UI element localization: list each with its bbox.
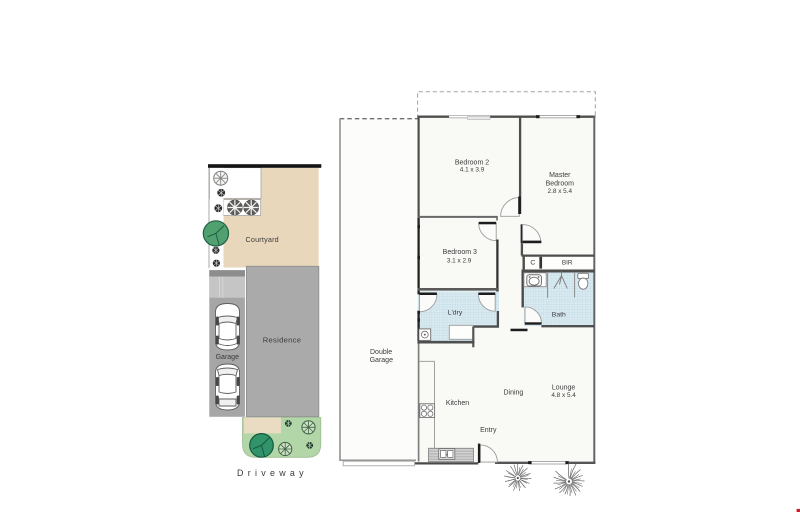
svg-text:Dining: Dining <box>503 389 523 396</box>
svg-text:Double: Double <box>370 349 392 356</box>
svg-text:C: C <box>530 260 535 267</box>
svg-text:3.1 x 2.9: 3.1 x 2.9 <box>447 257 472 264</box>
svg-text:Garage: Garage <box>216 354 239 361</box>
svg-text:Kitchen: Kitchen <box>446 400 469 407</box>
svg-text:BIR: BIR <box>562 260 573 267</box>
svg-text:Bedroom: Bedroom <box>546 181 575 188</box>
svg-text:4.1 x 3.9: 4.1 x 3.9 <box>460 166 485 173</box>
svg-text:Courtyard: Courtyard <box>246 235 279 244</box>
svg-text:Bedroom 3: Bedroom 3 <box>443 249 477 256</box>
svg-text:Bath: Bath <box>552 311 566 318</box>
svg-text:Master: Master <box>549 172 571 179</box>
svg-text:Entry: Entry <box>480 427 497 434</box>
svg-text:L'dry: L'dry <box>448 309 463 316</box>
svg-text:Garage: Garage <box>370 357 393 364</box>
svg-text:Residence: Residence <box>263 335 302 344</box>
svg-text:Driveway: Driveway <box>237 468 308 478</box>
svg-text:4.8 x 5.4: 4.8 x 5.4 <box>551 392 576 399</box>
svg-text:2.8 x 5.4: 2.8 x 5.4 <box>548 188 573 195</box>
svg-text:Lounge: Lounge <box>552 384 575 391</box>
